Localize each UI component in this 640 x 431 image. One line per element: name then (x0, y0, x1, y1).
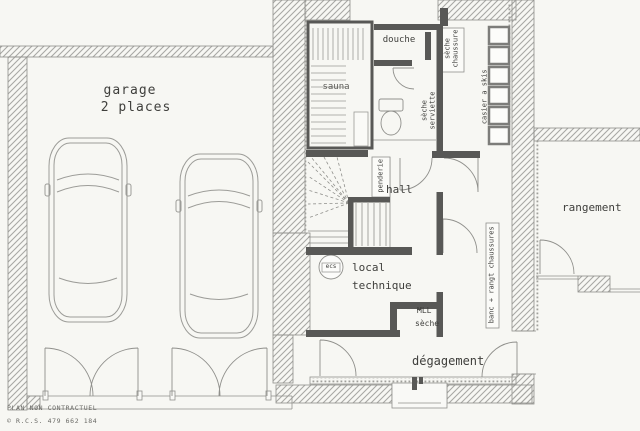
douche-label: douche (374, 35, 424, 45)
floor-plan: garage 2 places sauna douche sèche servi… (0, 0, 640, 431)
rangement-label: rangement (562, 201, 622, 214)
towel-radiator (425, 32, 431, 60)
car-2 (176, 154, 262, 338)
plan-registration: © R.C.S. 479 662 184 (7, 417, 97, 425)
seche-serviette-label: sèche serviette (422, 91, 437, 131)
penderie-label: penderie (377, 156, 385, 196)
car-1 (45, 138, 131, 322)
sauna-label: sauna (316, 82, 356, 92)
casier-skis-label: casier a skis (481, 69, 489, 125)
plan-disclaimer: PLAN NON CONTRACTUEL (7, 404, 97, 412)
mll-label: MLL (417, 306, 431, 315)
hall-label: hall (386, 183, 413, 196)
ski-lockers (489, 27, 509, 144)
garage-label: garage (90, 83, 170, 98)
mll-seche-label: sèche (415, 319, 439, 328)
shoe-dryer-appliance (440, 8, 448, 26)
banc-rangt-chaussures-label: banc + rangt chaussures (488, 223, 496, 327)
toilet-fixture (379, 99, 403, 135)
degagement-label: dégagement (412, 354, 484, 368)
ecs-label: ecs (322, 263, 340, 270)
garage-capacity-label: 2 places (90, 100, 182, 115)
floorplan-drawing (0, 0, 640, 431)
local-technique-label: local technique (352, 259, 416, 295)
seche-chaussure-label: sèche chaussure (445, 26, 460, 72)
